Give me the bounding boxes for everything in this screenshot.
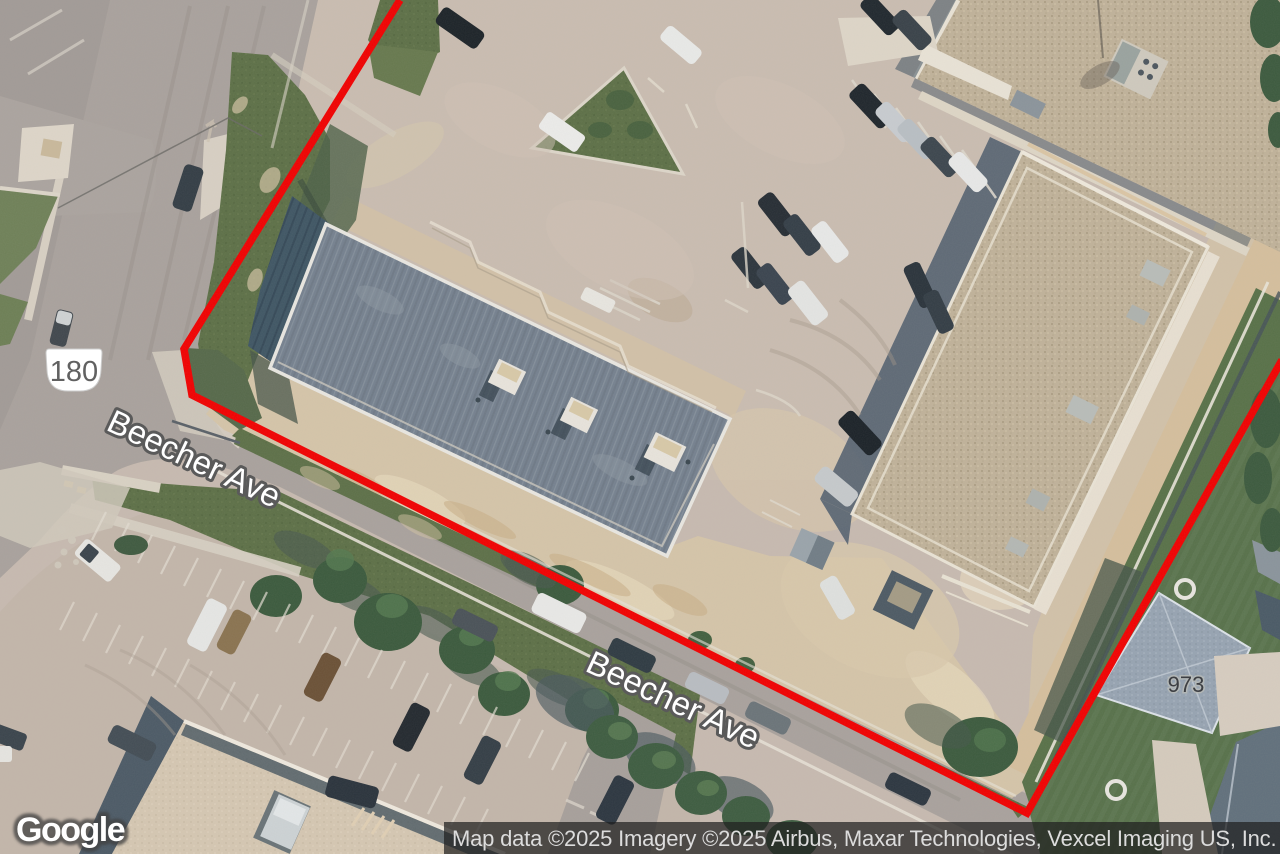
svg-text:Map data ©2025 Imagery ©2025 A: Map data ©2025 Imagery ©2025 Airbus, Max… — [452, 826, 1276, 851]
svg-text:Google: Google — [16, 811, 125, 849]
svg-text:180: 180 — [50, 356, 98, 388]
svg-text:973: 973 — [1168, 672, 1205, 697]
